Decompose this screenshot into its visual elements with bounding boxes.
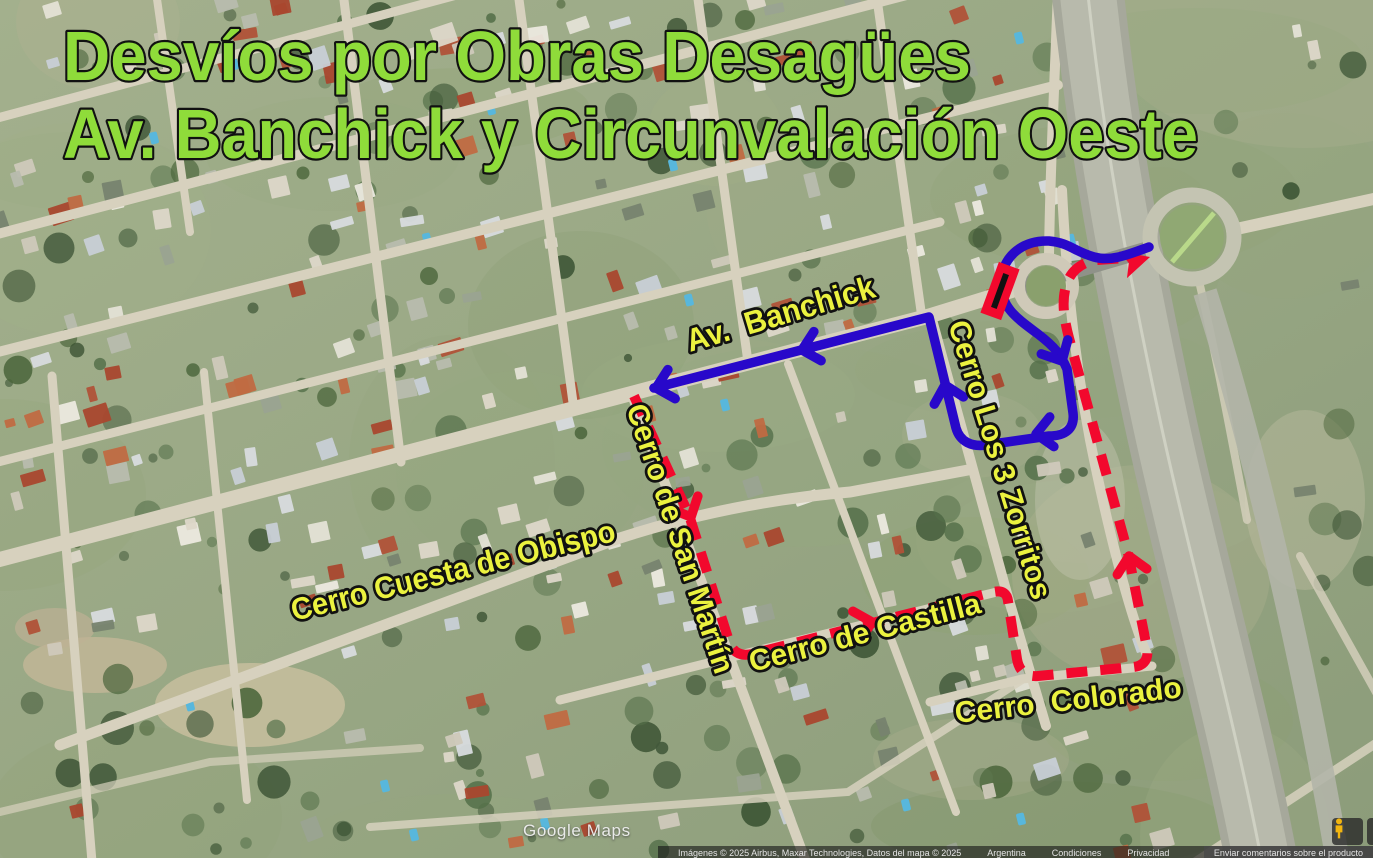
tree bbox=[704, 725, 730, 751]
tree bbox=[933, 495, 960, 522]
house bbox=[307, 521, 330, 544]
tree bbox=[139, 720, 154, 735]
tree bbox=[280, 571, 290, 581]
map-control-partial[interactable] bbox=[1367, 818, 1373, 845]
tree bbox=[240, 837, 252, 849]
tree bbox=[1340, 52, 1367, 79]
tree bbox=[1214, 110, 1238, 134]
tree bbox=[1120, 834, 1132, 846]
tree bbox=[575, 427, 588, 440]
tree bbox=[973, 224, 1002, 253]
tree bbox=[257, 765, 290, 798]
tree bbox=[94, 358, 106, 370]
tree bbox=[186, 710, 213, 737]
house bbox=[136, 613, 158, 633]
tree bbox=[850, 829, 865, 844]
attribution-link-privacy[interactable]: Privacidad bbox=[1127, 848, 1169, 858]
tree bbox=[267, 720, 286, 739]
tree bbox=[4, 356, 33, 385]
tree bbox=[702, 464, 711, 473]
tree bbox=[148, 453, 157, 462]
tree bbox=[210, 843, 222, 855]
house bbox=[327, 564, 345, 581]
tree bbox=[589, 779, 609, 799]
tree bbox=[301, 792, 320, 811]
tree bbox=[515, 625, 541, 651]
tree bbox=[1016, 417, 1027, 428]
house bbox=[975, 645, 989, 661]
tree bbox=[686, 675, 706, 695]
attribution-link-terms[interactable]: Condiciones bbox=[1052, 848, 1102, 858]
tree bbox=[317, 387, 337, 407]
tree bbox=[1332, 510, 1361, 539]
pegman-head bbox=[1336, 818, 1342, 824]
tree bbox=[944, 522, 963, 541]
tree bbox=[182, 814, 205, 837]
map-viewport[interactable]: Av. Banchick Cerro Los 3 Zorritos Cerro … bbox=[0, 0, 1373, 858]
tree bbox=[789, 269, 802, 282]
tree bbox=[1115, 770, 1130, 785]
tree bbox=[726, 439, 757, 470]
attribution-bar: Imágenes © 2025 Airbus, Maxar Technologi… bbox=[658, 846, 1373, 858]
tree bbox=[439, 288, 455, 304]
tree bbox=[1138, 574, 1148, 584]
tree bbox=[554, 476, 585, 507]
title-line-2: Av. Banchick y Circunvalación Oeste bbox=[63, 95, 1198, 173]
tree bbox=[624, 354, 632, 362]
tree bbox=[405, 485, 431, 511]
tree bbox=[333, 821, 354, 842]
tree bbox=[21, 692, 44, 715]
tree bbox=[207, 537, 217, 547]
tree bbox=[44, 233, 75, 264]
tree bbox=[656, 742, 669, 755]
tree bbox=[1073, 763, 1103, 793]
tree bbox=[70, 343, 85, 358]
tree bbox=[159, 445, 174, 460]
tree bbox=[1232, 162, 1248, 178]
tree bbox=[3, 270, 36, 303]
house bbox=[444, 617, 460, 631]
tree bbox=[1324, 409, 1355, 440]
tree bbox=[476, 769, 484, 777]
attribution-link-country[interactable]: Argentina bbox=[987, 848, 1026, 858]
pegman-body bbox=[1336, 825, 1343, 838]
tree bbox=[1078, 467, 1088, 477]
tree bbox=[119, 551, 129, 561]
tree bbox=[837, 607, 849, 619]
tree bbox=[420, 267, 438, 285]
tree bbox=[625, 697, 654, 726]
tree bbox=[1308, 61, 1317, 70]
tree bbox=[214, 803, 225, 814]
house bbox=[443, 751, 455, 762]
house bbox=[47, 642, 63, 656]
house bbox=[514, 366, 527, 380]
tree bbox=[103, 664, 133, 694]
satellite-map: Av. Banchick Cerro Los 3 Zorritos Cerro … bbox=[0, 0, 1373, 858]
tree bbox=[119, 229, 138, 248]
tree bbox=[1030, 361, 1049, 380]
imagery-credit: Imágenes © 2025 Airbus, Maxar Technologi… bbox=[678, 848, 961, 858]
tree bbox=[477, 612, 488, 623]
tree bbox=[1059, 468, 1074, 483]
house bbox=[152, 208, 171, 230]
house bbox=[185, 517, 198, 530]
house bbox=[914, 379, 928, 393]
tree bbox=[895, 443, 921, 469]
tree bbox=[186, 363, 200, 377]
tree bbox=[248, 303, 259, 314]
tree bbox=[1282, 182, 1299, 199]
google-maps-watermark[interactable]: Google Maps bbox=[523, 821, 631, 841]
feedback-link[interactable]: Enviar comentarios sobre el producto bbox=[1204, 846, 1373, 858]
tree bbox=[653, 761, 681, 789]
title-line-1: Desvíos por Obras Desagües bbox=[63, 17, 971, 95]
pegman-button[interactable] bbox=[1332, 818, 1363, 845]
house bbox=[905, 419, 927, 440]
pegman-icon bbox=[1332, 818, 1346, 839]
tree bbox=[353, 329, 365, 341]
tree bbox=[371, 487, 394, 510]
tree bbox=[82, 448, 98, 464]
tree bbox=[1321, 657, 1330, 666]
tree bbox=[863, 449, 880, 466]
